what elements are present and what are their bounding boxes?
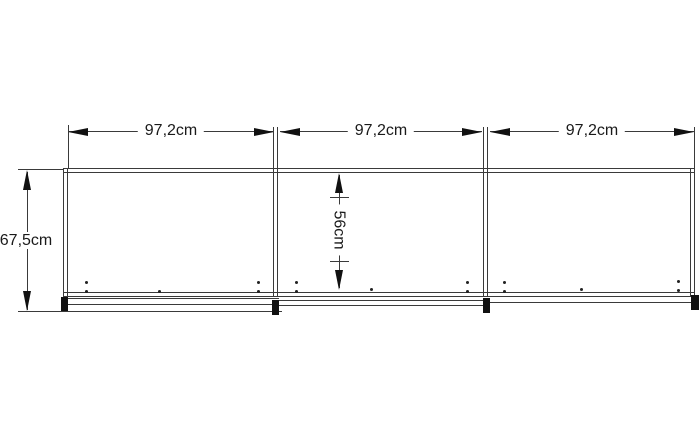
width-label-section-2: 97,2cm (348, 122, 414, 139)
arrowhead-right-icon (254, 128, 274, 136)
door-roller-foot (691, 295, 699, 310)
door-roller-foot (272, 300, 279, 315)
mounting-dot (370, 288, 373, 291)
mounting-dot (158, 290, 161, 293)
width-extension-line-right (694, 127, 695, 168)
mounting-dot (85, 290, 88, 293)
inner-height-label: 56cm (331, 204, 348, 255)
mounting-dot (85, 281, 88, 284)
mounting-dot (503, 281, 506, 284)
width-label-section-3: 97,2cm (559, 122, 625, 139)
arrowhead-left-icon (490, 128, 510, 136)
mounting-dot (295, 281, 298, 284)
mounting-dot (503, 290, 506, 293)
cabinet-top-panel (63, 168, 695, 173)
mounting-dot (257, 281, 260, 284)
door-roller-foot (61, 297, 68, 311)
inner-height-tick-top (330, 197, 349, 198)
total-height-label: 67,5cm (0, 232, 54, 249)
mounting-dot (295, 290, 298, 293)
cabinet-left-panel (63, 168, 68, 297)
mounting-dot (677, 280, 680, 283)
mounting-dot (677, 289, 680, 292)
mounting-dot (466, 281, 469, 284)
right-door-bottom-rail (487, 296, 698, 303)
cabinet-right-panel (690, 168, 695, 297)
cabinet-divider-1 (273, 127, 278, 297)
arrowhead-left-icon (68, 128, 88, 136)
arrowhead-up-icon (335, 173, 343, 193)
arrowhead-left-icon (280, 128, 300, 136)
inner-height-tick-bottom (330, 261, 349, 262)
mounting-dot (580, 288, 583, 291)
arrowhead-up-icon (23, 170, 31, 190)
furniture-technical-drawing: 97,2cm 97,2cm 97,2cm 67,5cm 56cm (0, 0, 700, 438)
left-door-bottom-rail (63, 298, 279, 305)
arrowhead-down-icon (335, 270, 343, 290)
mounting-dot (466, 290, 469, 293)
mounting-dot (257, 290, 260, 293)
arrowhead-right-icon (462, 128, 482, 136)
door-roller-foot (483, 298, 490, 313)
height-extension-line-bottom (18, 311, 282, 312)
cabinet-divider-2 (483, 127, 488, 297)
arrowhead-right-icon (674, 128, 694, 136)
width-label-section-1: 97,2cm (138, 122, 204, 139)
middle-door-bottom-rail (279, 300, 487, 306)
arrowhead-down-icon (23, 291, 31, 311)
